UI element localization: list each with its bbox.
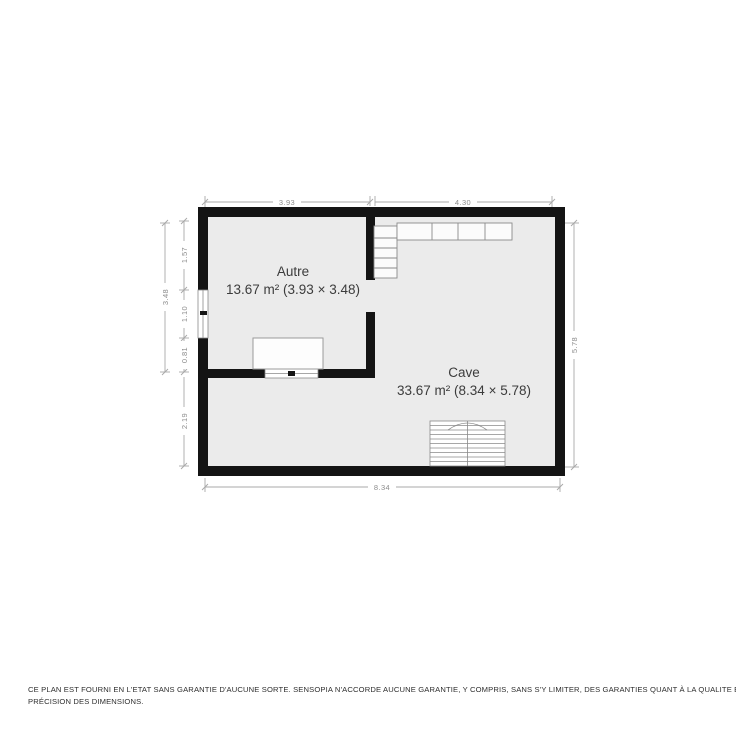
dim-top-right-label: 4.30 bbox=[455, 198, 471, 207]
room-name-cave: Cave bbox=[448, 365, 480, 380]
disclaimer-line-1: CE PLAN EST FOURNI EN L'ETAT SANS GARANT… bbox=[28, 684, 720, 696]
floor-plan-drawing: 3.93 4.30 3.48 1.57 1.10 0.81 2.1 bbox=[0, 0, 736, 736]
dim-left-total-label: 3.48 bbox=[161, 289, 170, 305]
dim-top-left-label: 3.93 bbox=[279, 198, 295, 207]
room-area-cave: 33.67 m² (8.34 × 5.78) bbox=[397, 383, 531, 398]
dim-left-window-label: 1.10 bbox=[180, 306, 189, 322]
interior-wall-vertical-lower bbox=[366, 312, 375, 378]
dim-left-total-group: 3.48 bbox=[161, 283, 171, 311]
staircase-outline bbox=[374, 226, 397, 278]
wall-left-lower bbox=[198, 338, 208, 476]
disclaimer-line-2: PRÉCISION DES DIMENSIONS. bbox=[28, 696, 720, 708]
closet-outline bbox=[397, 223, 512, 240]
interior-wall-horizontal-right bbox=[318, 369, 366, 378]
dim-right-group: 5.78 bbox=[570, 331, 580, 359]
dim-left-window-group: 1.10 bbox=[180, 300, 190, 328]
disclaimer: CE PLAN EST FOURNI EN L'ETAT SANS GARANT… bbox=[28, 684, 720, 708]
dim-left-lower-group: 0.81 bbox=[180, 341, 190, 369]
dim-left-bottom-group: 2.19 bbox=[180, 407, 190, 435]
window-center-tick bbox=[200, 311, 207, 315]
furniture-table bbox=[253, 338, 323, 369]
window-interior-wall bbox=[265, 369, 318, 378]
window-left-wall bbox=[198, 290, 208, 338]
floor-plan-page: 3.93 4.30 3.48 1.57 1.10 0.81 2.1 bbox=[0, 0, 736, 736]
dim-left-upper-group: 1.57 bbox=[180, 241, 190, 269]
dim-bottom-label: 8.34 bbox=[374, 483, 390, 492]
wall-top bbox=[198, 207, 565, 217]
wall-right bbox=[555, 207, 565, 476]
wall-left-upper bbox=[198, 207, 208, 290]
window-center-tick bbox=[288, 371, 295, 376]
room-name-autre: Autre bbox=[277, 264, 309, 279]
interior-wall-horizontal-left bbox=[208, 369, 265, 378]
storage-cabinet bbox=[430, 421, 505, 466]
staircase bbox=[374, 226, 397, 278]
dim-left-bottom-label: 2.19 bbox=[180, 413, 189, 429]
dim-left-lower-label: 0.81 bbox=[180, 347, 189, 363]
wall-bottom bbox=[198, 466, 565, 476]
dim-right-label: 5.78 bbox=[570, 337, 579, 353]
closet-shelving bbox=[397, 223, 512, 240]
dim-left-upper-label: 1.57 bbox=[180, 247, 189, 263]
room-area-autre: 13.67 m² (3.93 × 3.48) bbox=[226, 282, 360, 297]
